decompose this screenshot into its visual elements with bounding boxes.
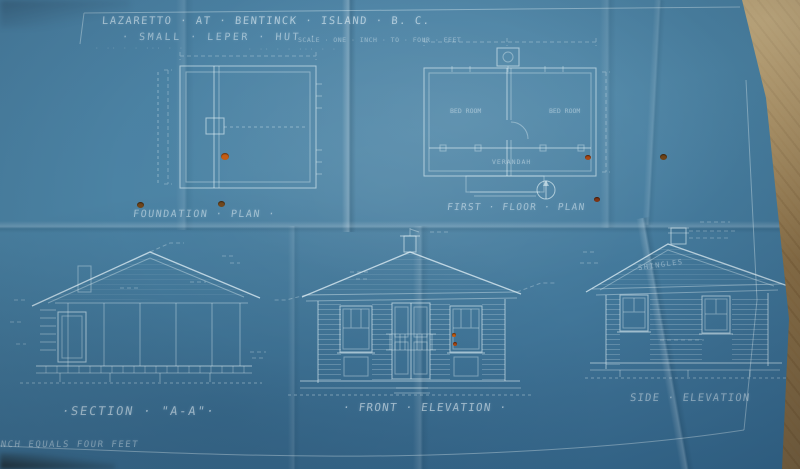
side-elevation-drawing	[580, 222, 790, 378]
paper-hole	[221, 153, 229, 160]
paper-hole	[660, 154, 667, 160]
paper-hole	[218, 201, 225, 207]
foundation-plan-label: FOUNDATION · PLAN ·	[132, 209, 276, 220]
paper-hole	[585, 155, 591, 160]
paper-hole	[594, 197, 600, 202]
verandah-label: VERANDAH	[492, 158, 531, 166]
first-floor-plan-drawing	[424, 38, 610, 199]
title-subnote: · ·· · · ··· · ·	[95, 45, 185, 52]
paper-hole	[453, 342, 457, 346]
scale-footnote: ONE INCH EQUALS FOUR FEET	[0, 440, 140, 450]
photo-of-blueprint: LAZARETTO · AT · BENTINCK · ISLAND · B. …	[0, 0, 800, 469]
title-subnote: · ·· · · ··· · ·	[248, 46, 338, 53]
paper-hole	[452, 333, 456, 337]
blueprint-sheet: LAZARETTO · AT · BENTINCK · ISLAND · B. …	[0, 0, 800, 469]
bedroom-label-left: BED ROOM	[450, 107, 481, 115]
section-label: ·SECTION · "A-A"·	[61, 404, 217, 418]
section-drawing	[10, 243, 262, 383]
sheet-border	[0, 7, 757, 456]
title-line2: · SMALL · LEPER · HUT ·	[122, 32, 319, 43]
first-floor-plan-label: FIRST · FLOOR · PLAN	[446, 202, 586, 213]
bedroom-label-right: BED ROOM	[549, 107, 580, 115]
front-elevation-drawing	[250, 228, 557, 395]
side-elevation-label: SIDE · ELEVATION	[629, 392, 751, 404]
title-scale-note: SCALE · ONE · INCH · TO · FOUR · FEET	[298, 36, 461, 44]
front-elevation-label: · FRONT · ELEVATION ·	[342, 401, 508, 414]
paper-hole	[137, 202, 144, 208]
title-line1: LAZARETTO · AT · BENTINCK · ISLAND · B. …	[102, 15, 431, 27]
foundation-plan-drawing	[158, 52, 322, 188]
